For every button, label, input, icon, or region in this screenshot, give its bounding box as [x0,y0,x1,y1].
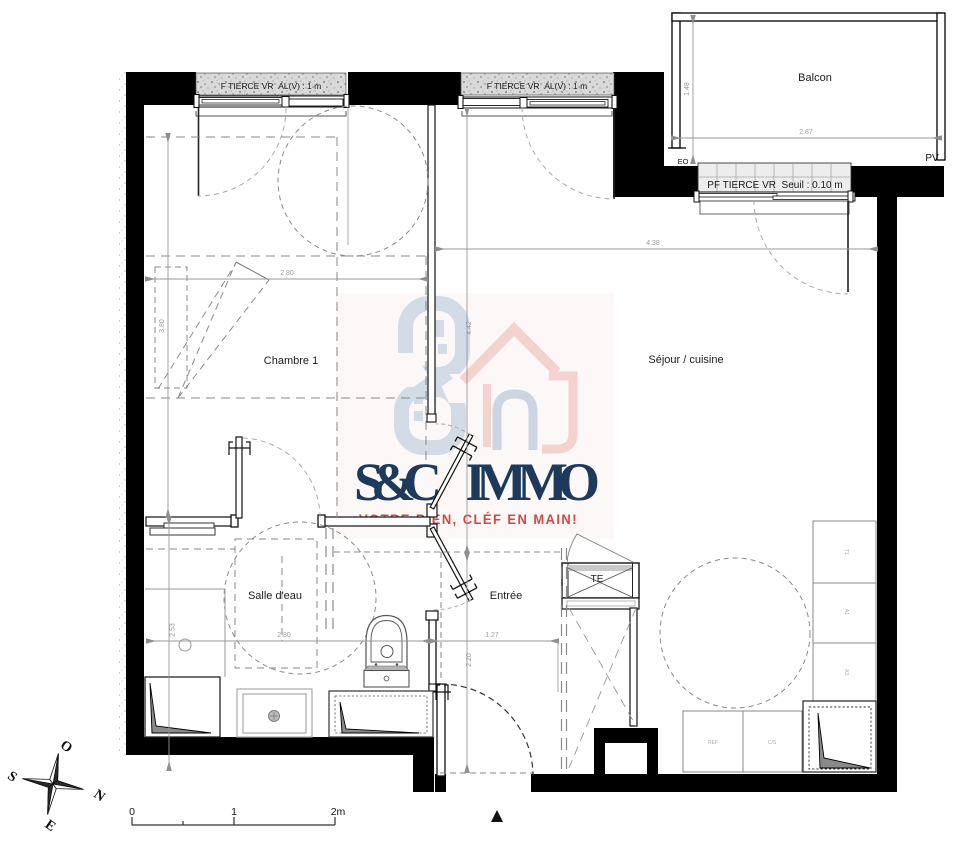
svg-text:Entrée: Entrée [490,590,522,602]
svg-text:Séjour / cuisine: Séjour / cuisine [648,354,723,366]
svg-text:2.80: 2.80 [277,632,291,639]
svg-text:1.48: 1.48 [684,82,691,96]
svg-text:TE: TE [591,574,604,585]
svg-text:F TIERCE VR AL(V) : 1 m: F TIERCE VR AL(V) : 1 m [221,81,321,91]
svg-text:PV: PV [925,153,939,164]
svg-text:PF TIERCE VR Seuil : 0.10 m: PF TIERCE VR Seuil : 0.10 m [707,180,842,191]
svg-text:Salle d'eau: Salle d'eau [248,590,302,602]
svg-text:2.87: 2.87 [799,129,813,136]
svg-text:1: 1 [231,806,237,818]
svg-text:S&C: S&C [354,452,442,512]
svg-text:2.20: 2.20 [466,653,473,667]
svg-text:T1: T1 [843,549,849,555]
svg-text:C/S: C/S [768,740,777,746]
svg-text:3.80: 3.80 [159,319,166,333]
svg-text:0: 0 [129,806,135,818]
svg-text:IMMO: IMMO [465,452,600,512]
svg-text:F TIERCE VR AL(V) : 1 m: F TIERCE VR AL(V) : 1 m [487,81,587,91]
svg-text:A1: A1 [843,609,849,615]
svg-text:4.42: 4.42 [466,321,473,335]
svg-text:2m: 2m [331,806,346,818]
svg-text:2.53: 2.53 [170,623,177,637]
svg-text:1.27: 1.27 [485,632,499,639]
svg-text:EO: EO [678,157,689,166]
svg-text:REF: REF [708,740,718,746]
svg-text:A3: A3 [843,669,849,675]
svg-text:Balcon: Balcon [798,72,832,84]
svg-text:2.80: 2.80 [280,270,294,277]
svg-text:4.38: 4.38 [646,240,660,247]
svg-text:Chambre 1: Chambre 1 [264,355,318,367]
